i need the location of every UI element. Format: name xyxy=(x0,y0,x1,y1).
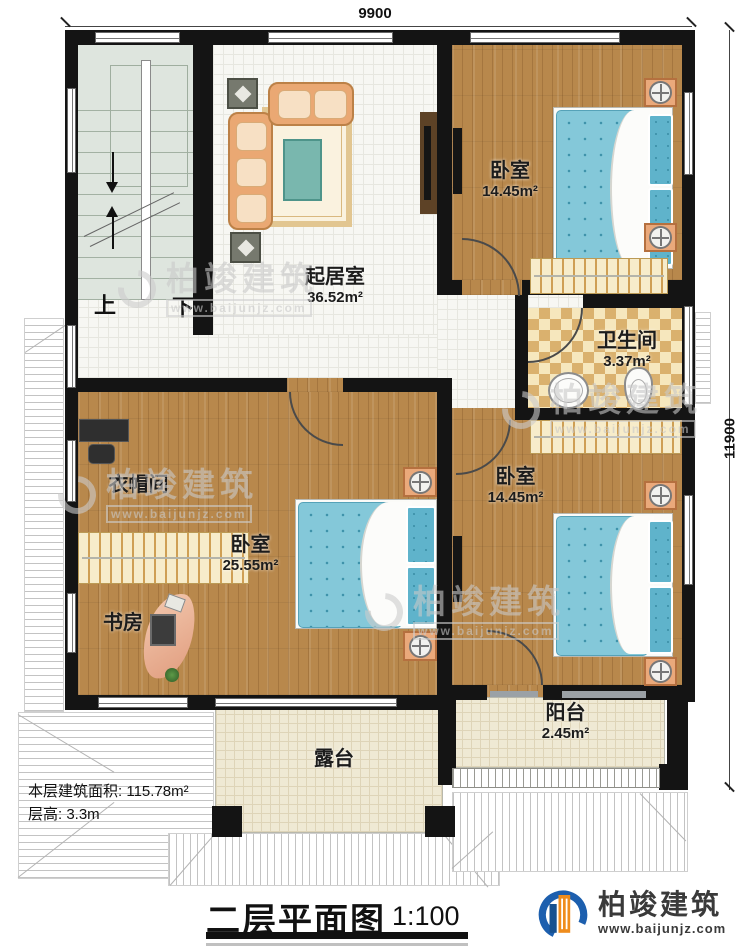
window xyxy=(67,325,76,388)
room-area: 3.37m² xyxy=(568,353,686,370)
dimension-right-value: 11900 xyxy=(722,403,739,475)
nightstand xyxy=(644,223,677,252)
room-label-master-bedroom: 卧室 25.55m² xyxy=(193,534,308,574)
room-label-terrace: 露台 xyxy=(295,748,373,771)
stair-arrow-up-icon xyxy=(106,206,118,217)
brand-logo-icon xyxy=(536,886,590,940)
terrace-pillar xyxy=(425,806,455,837)
watermark-text: 柏竣建筑 www.baijunjz.com xyxy=(413,585,565,640)
watermark: 柏竣建筑 www.baijunjz.com xyxy=(118,262,318,317)
stool xyxy=(88,444,115,464)
wall-segment xyxy=(659,764,688,790)
room-area: 14.45m² xyxy=(458,489,573,506)
nightstand xyxy=(644,657,677,686)
brand-name: 柏竣建筑 xyxy=(598,890,726,921)
watermark-name: 柏竣建筑 xyxy=(413,585,565,620)
brand-block: 柏竣建筑 www.baijunjz.com xyxy=(536,886,726,940)
room-name: 书房 xyxy=(90,612,156,635)
sliding-door xyxy=(215,698,397,707)
room-label-balcony: 阳台 2.45m² xyxy=(508,702,623,742)
watermark-name: 柏竣建筑 xyxy=(166,262,318,297)
window xyxy=(684,495,693,585)
doorway-floor xyxy=(528,295,583,308)
watermark-name: 柏竣建筑 xyxy=(550,383,702,418)
room-name: 卧室 xyxy=(193,534,308,557)
floor-plan: 上 下 xyxy=(0,0,750,952)
room-label-bathroom: 卫生间 3.37m² xyxy=(568,330,686,370)
wall-segment xyxy=(437,280,462,295)
sofa-cushion xyxy=(236,158,267,187)
bed-pillow xyxy=(648,114,673,186)
nightstand xyxy=(644,481,677,510)
dimension-top-value: 9900 xyxy=(340,5,410,22)
roof-eave-bottom-right xyxy=(452,792,688,872)
stair-arrow-stem xyxy=(112,152,114,182)
watermark-logo-icon xyxy=(50,469,104,523)
lamp-icon xyxy=(649,226,672,249)
watermark-logo-icon xyxy=(494,384,548,438)
watermark-text: 柏竣建筑 www.baijunjz.com xyxy=(166,262,318,317)
wall-segment xyxy=(583,295,682,308)
lamp-icon xyxy=(649,81,672,104)
watermark-url: www.baijunjz.com xyxy=(106,505,252,523)
window xyxy=(98,697,188,708)
bed xyxy=(553,513,673,657)
balcony-railing xyxy=(452,768,660,788)
brand-text: 柏竣建筑 www.baijunjz.com xyxy=(598,890,726,936)
lamp-icon xyxy=(649,484,672,507)
wall-segment xyxy=(437,378,452,708)
nightstand xyxy=(403,467,437,497)
room-name: 阳台 xyxy=(508,702,623,725)
nightstand xyxy=(644,78,677,107)
tv xyxy=(424,126,431,200)
hallway-floor xyxy=(78,335,437,378)
lamp-icon xyxy=(649,660,672,683)
room-area: 2.45m² xyxy=(508,725,623,742)
bed-pillow xyxy=(648,520,673,584)
sofa xyxy=(228,112,273,230)
watermark-url: www.baijunjz.com xyxy=(550,420,696,438)
doorway-floor xyxy=(287,378,343,392)
window xyxy=(684,92,693,175)
room-name: 卧室 xyxy=(455,160,565,183)
coffee-table xyxy=(283,139,322,201)
dimension-line-top xyxy=(65,26,692,27)
sofa-cushion xyxy=(236,122,267,151)
window xyxy=(268,32,393,43)
watermark-text: 柏竣建筑 www.baijunjz.com xyxy=(106,468,258,523)
window xyxy=(470,32,620,43)
watermark-logo-icon xyxy=(357,586,411,640)
balcony-threshold xyxy=(490,691,538,697)
dressing-table xyxy=(79,419,129,442)
room-name: 卧室 xyxy=(458,466,573,489)
lamp-icon xyxy=(409,471,432,494)
window xyxy=(67,593,76,653)
window xyxy=(95,32,180,43)
watermark-url: www.baijunjz.com xyxy=(166,299,312,317)
watermark: 柏竣建筑 www.baijunjz.com xyxy=(365,585,565,640)
window xyxy=(67,88,76,173)
wall-segment xyxy=(65,378,287,392)
wall-segment xyxy=(437,30,452,295)
floor-height-note: 层高: 3.3m xyxy=(28,803,100,824)
room-area: 14.45m² xyxy=(455,183,565,200)
brand-url: www.baijunjz.com xyxy=(598,921,726,936)
terrace-pillar xyxy=(212,806,242,837)
balcony-threshold xyxy=(562,691,646,698)
drawing-scale: 1:100 xyxy=(392,901,460,932)
sofa xyxy=(268,82,354,126)
watermark-text: 柏竣建筑 www.baijunjz.com xyxy=(550,383,702,438)
sofa-cushion xyxy=(278,90,311,119)
wardrobe xyxy=(530,258,668,294)
floor-area-note: 本层建筑面积: 115.78m² xyxy=(28,780,189,801)
room-label-bedroom2: 卧室 14.45m² xyxy=(458,466,573,506)
room-label-study: 书房 xyxy=(90,612,156,635)
room-label-bedroom1: 卧室 14.45m² xyxy=(455,160,565,200)
wall-segment xyxy=(452,685,487,700)
bed-pillow xyxy=(648,586,673,654)
room-name: 露台 xyxy=(295,748,373,771)
title-underline xyxy=(206,932,468,939)
watermark-url: www.baijunjz.com xyxy=(413,622,559,640)
stair-up-label: 上 xyxy=(88,288,122,320)
room-name: 卫生间 xyxy=(568,330,686,353)
watermark-logo-icon xyxy=(110,263,164,317)
watermark: 柏竣建筑 www.baijunjz.com xyxy=(502,383,702,438)
side-table xyxy=(227,78,258,109)
stair-arrow-stem xyxy=(112,217,114,249)
bed-pillow xyxy=(406,506,436,564)
plant xyxy=(165,668,179,682)
side-table xyxy=(230,232,261,263)
sofa-cushion xyxy=(314,90,347,119)
title-underline-light xyxy=(206,943,468,946)
wall-segment xyxy=(343,378,437,392)
room-area: 25.55m² xyxy=(193,557,308,574)
watermark: 柏竣建筑 www.baijunjz.com xyxy=(58,468,258,523)
stair-arrow-down-icon xyxy=(106,182,118,193)
sofa-cushion xyxy=(236,194,267,223)
watermark-name: 柏竣建筑 xyxy=(106,468,258,503)
